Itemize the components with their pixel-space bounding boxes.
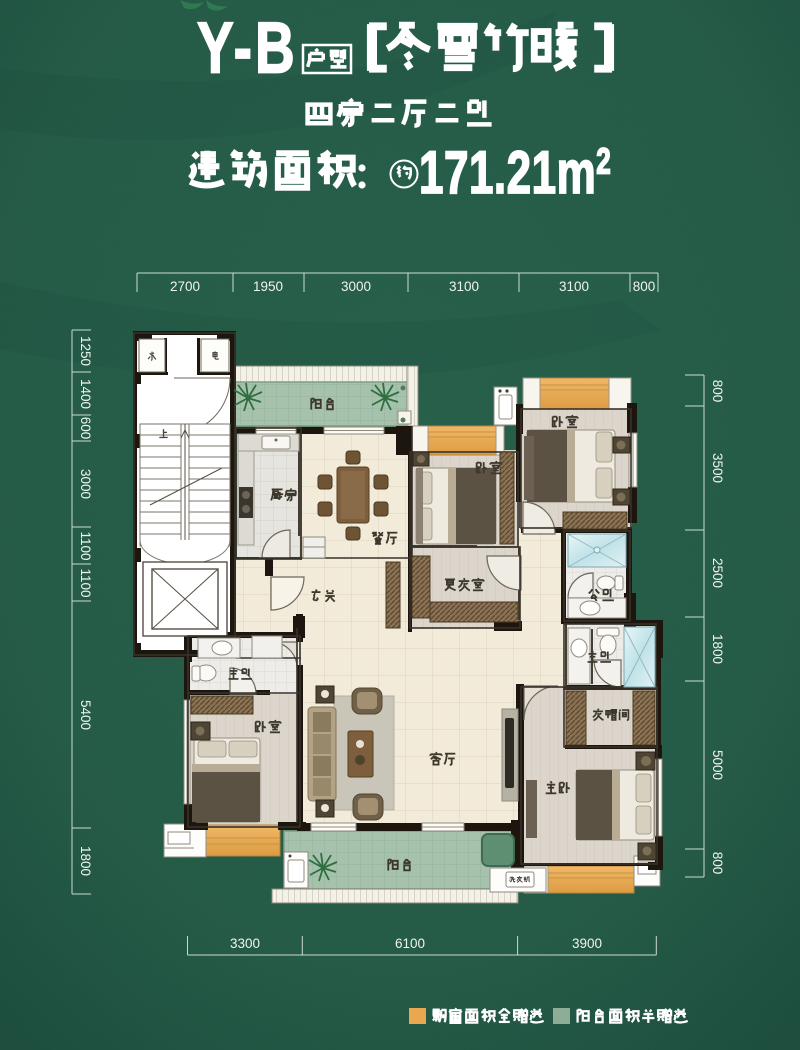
svg-text:1100: 1100 (78, 531, 93, 560)
svg-text:3000: 3000 (341, 279, 371, 294)
svg-text:1800: 1800 (78, 846, 93, 876)
svg-text:1250: 1250 (78, 336, 93, 366)
svg-text:1950: 1950 (253, 279, 283, 294)
svg-text:3100: 3100 (559, 279, 589, 294)
svg-text:2500: 2500 (710, 558, 725, 588)
svg-text:5000: 5000 (710, 750, 725, 780)
svg-text:3100: 3100 (449, 279, 479, 294)
svg-text:800: 800 (710, 852, 725, 875)
svg-text:3500: 3500 (710, 453, 725, 483)
svg-text:3900: 3900 (572, 936, 602, 951)
svg-text:1800: 1800 (710, 634, 725, 664)
svg-text:600: 600 (78, 417, 93, 440)
svg-text:5400: 5400 (78, 700, 93, 730)
svg-text:3000: 3000 (78, 469, 93, 499)
svg-text:3300: 3300 (230, 936, 260, 951)
svg-text:1100: 1100 (78, 568, 93, 597)
svg-text:6100: 6100 (395, 936, 425, 951)
svg-text:800: 800 (710, 380, 725, 403)
svg-text:2700: 2700 (170, 279, 200, 294)
svg-text:800: 800 (633, 279, 656, 294)
svg-text:1400: 1400 (78, 379, 93, 409)
